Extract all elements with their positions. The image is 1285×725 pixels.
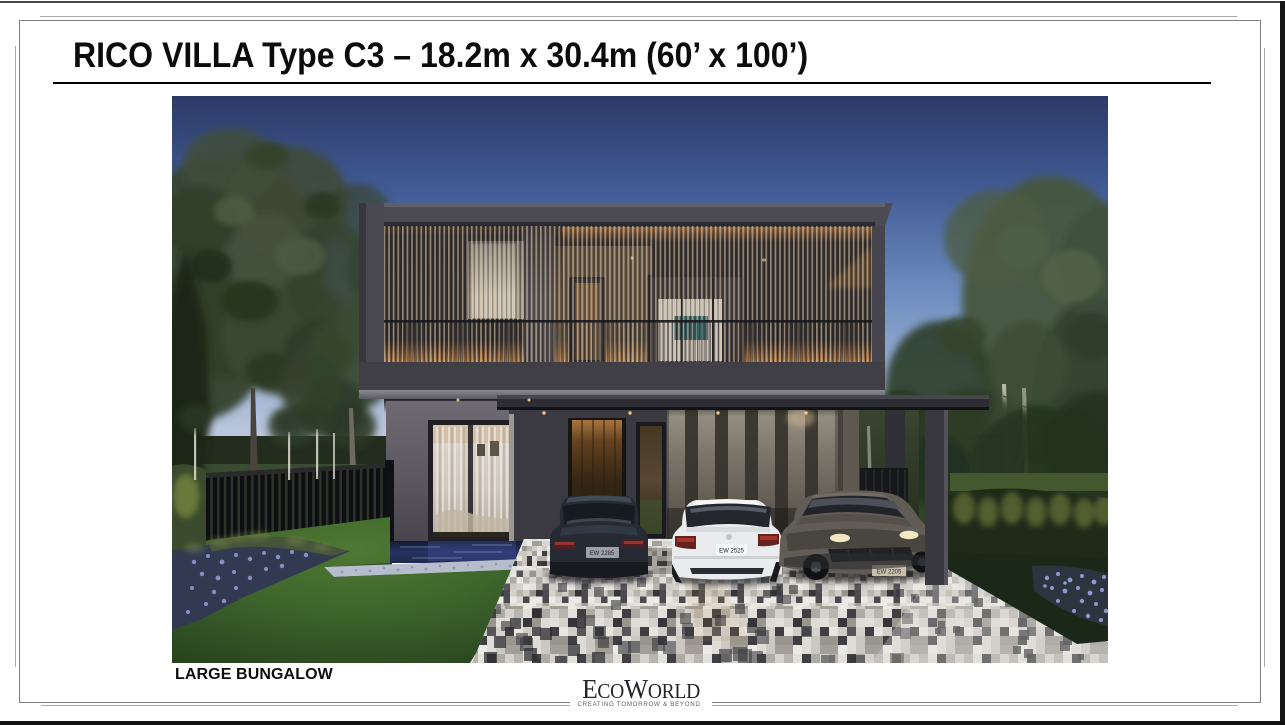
svg-text:EW 2205: EW 2205 xyxy=(877,570,902,576)
svg-text:EW 2285: EW 2285 xyxy=(590,551,615,557)
svg-text:EW 2525: EW 2525 xyxy=(719,549,744,555)
